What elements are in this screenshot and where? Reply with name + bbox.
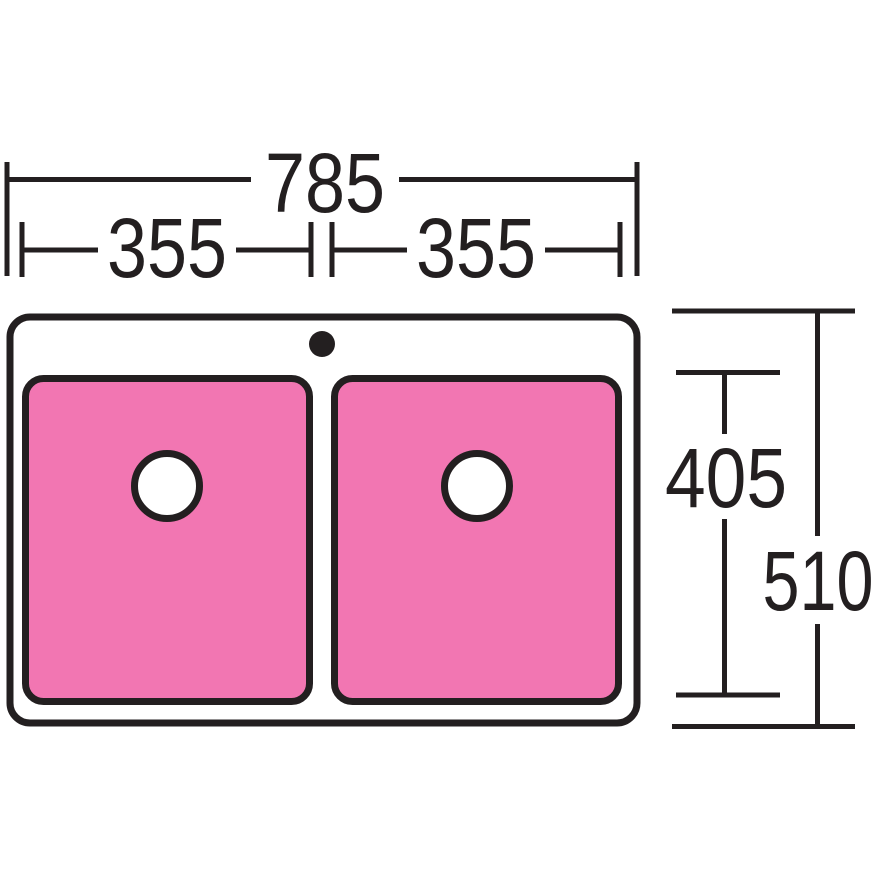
left-bowl: [26, 379, 310, 702]
sink-body: [10, 317, 637, 723]
right-bowl: [335, 379, 619, 702]
diagram-canvas: 785 355 355 405 510: [0, 0, 880, 880]
right-bowl-width-label: 355: [416, 201, 536, 295]
faucet-hole: [309, 331, 335, 357]
left-bowl-width-label: 355: [107, 201, 227, 295]
sink-dimension-diagram: 785 355 355 405 510: [0, 0, 880, 880]
overall-depth-label: 510: [763, 534, 874, 628]
left-drain-hole: [135, 454, 200, 519]
bowl-depth-label: 405: [665, 431, 787, 525]
overall-width-label: 785: [265, 136, 385, 230]
right-drain-hole: [445, 454, 510, 519]
